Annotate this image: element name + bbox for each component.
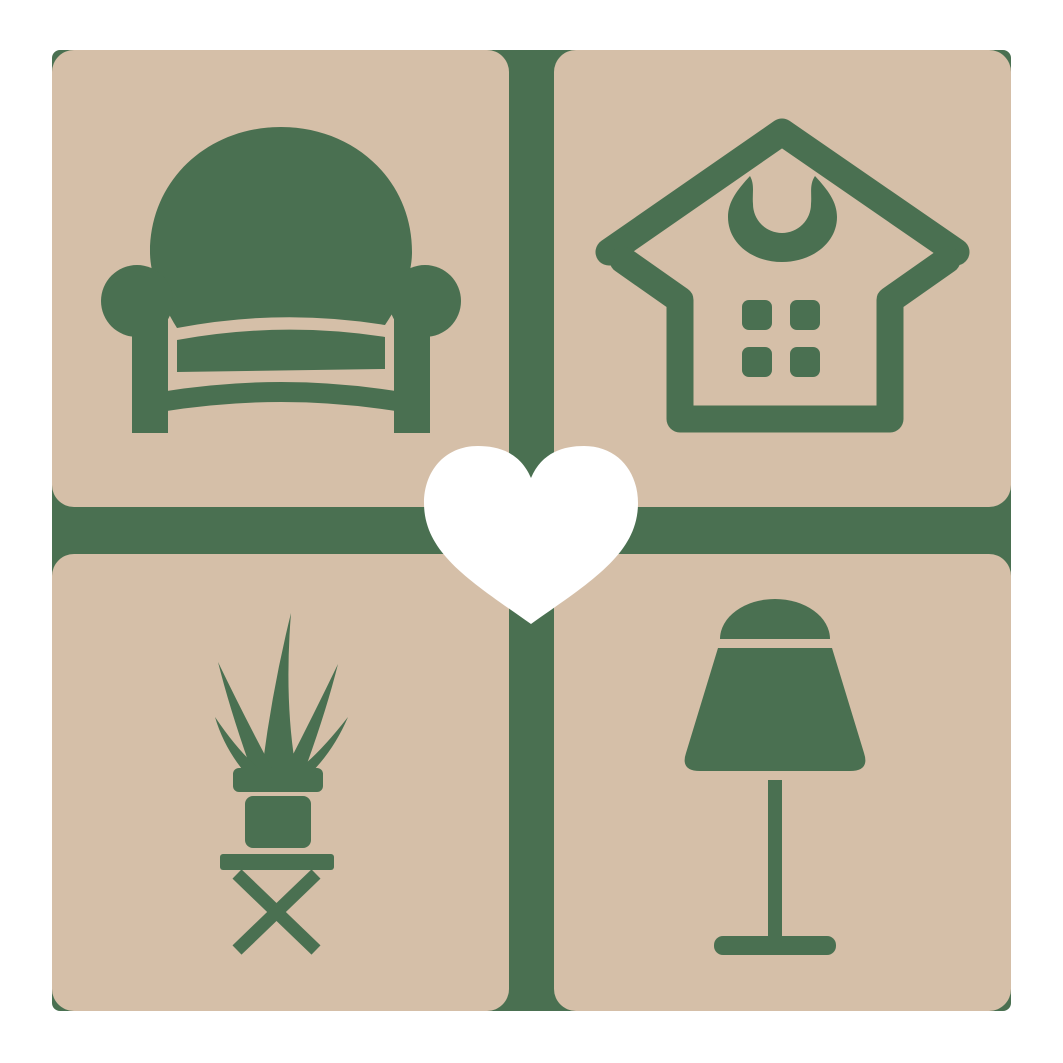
plant-pot-rim — [233, 768, 323, 792]
stool-seat — [220, 854, 334, 870]
window-pane — [742, 347, 772, 377]
lamp-base — [714, 936, 836, 955]
window-pane — [790, 347, 820, 377]
logo-canvas — [0, 0, 1063, 1063]
window-pane — [790, 300, 820, 330]
lamp-stem — [768, 780, 782, 941]
armchair-right-leg — [394, 301, 430, 433]
armchair-seat-cushion — [177, 330, 385, 372]
window-pane — [742, 300, 772, 330]
armchair-left-leg — [132, 301, 168, 433]
home-decor-logo — [0, 0, 1063, 1063]
plant-pot-body — [245, 796, 311, 848]
